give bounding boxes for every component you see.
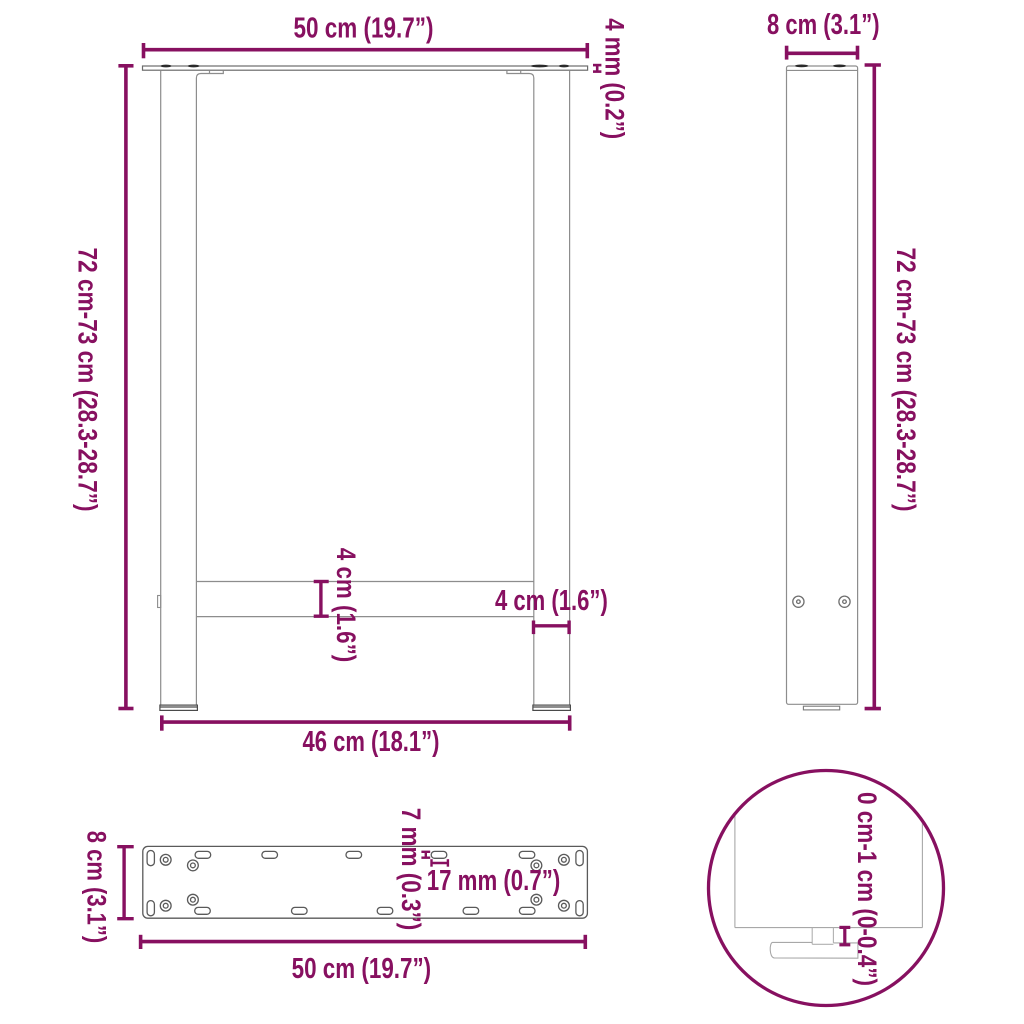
svg-text:7 mm (0.3”): 7 mm (0.3”) [396,808,426,931]
svg-text:17 mm (0.7”): 17 mm (0.7”) [427,865,561,897]
svg-text:50 cm (19.7”): 50 cm (19.7”) [292,953,432,985]
svg-text:4 cm (1.6”): 4 cm (1.6”) [331,548,361,662]
svg-text:46 cm (18.1”): 46 cm (18.1”) [303,726,440,758]
svg-text:72 cm-73 cm (28.3-28.7”): 72 cm-73 cm (28.3-28.7”) [891,248,921,512]
svg-text:50 cm (19.7”): 50 cm (19.7”) [294,13,434,45]
svg-text:72 cm-73 cm (28.3-28.7”): 72 cm-73 cm (28.3-28.7”) [73,248,103,512]
svg-text:4 cm (1.6”): 4 cm (1.6”) [495,585,608,617]
svg-text:4 mm (0.2”): 4 mm (0.2”) [600,18,630,139]
svg-text:8 cm (3.1”): 8 cm (3.1”) [81,831,111,944]
svg-text:0 cm-1 cm (0-0.4”): 0 cm-1 cm (0-0.4”) [852,792,882,986]
svg-text:8 cm (3.1”): 8 cm (3.1”) [767,9,880,41]
